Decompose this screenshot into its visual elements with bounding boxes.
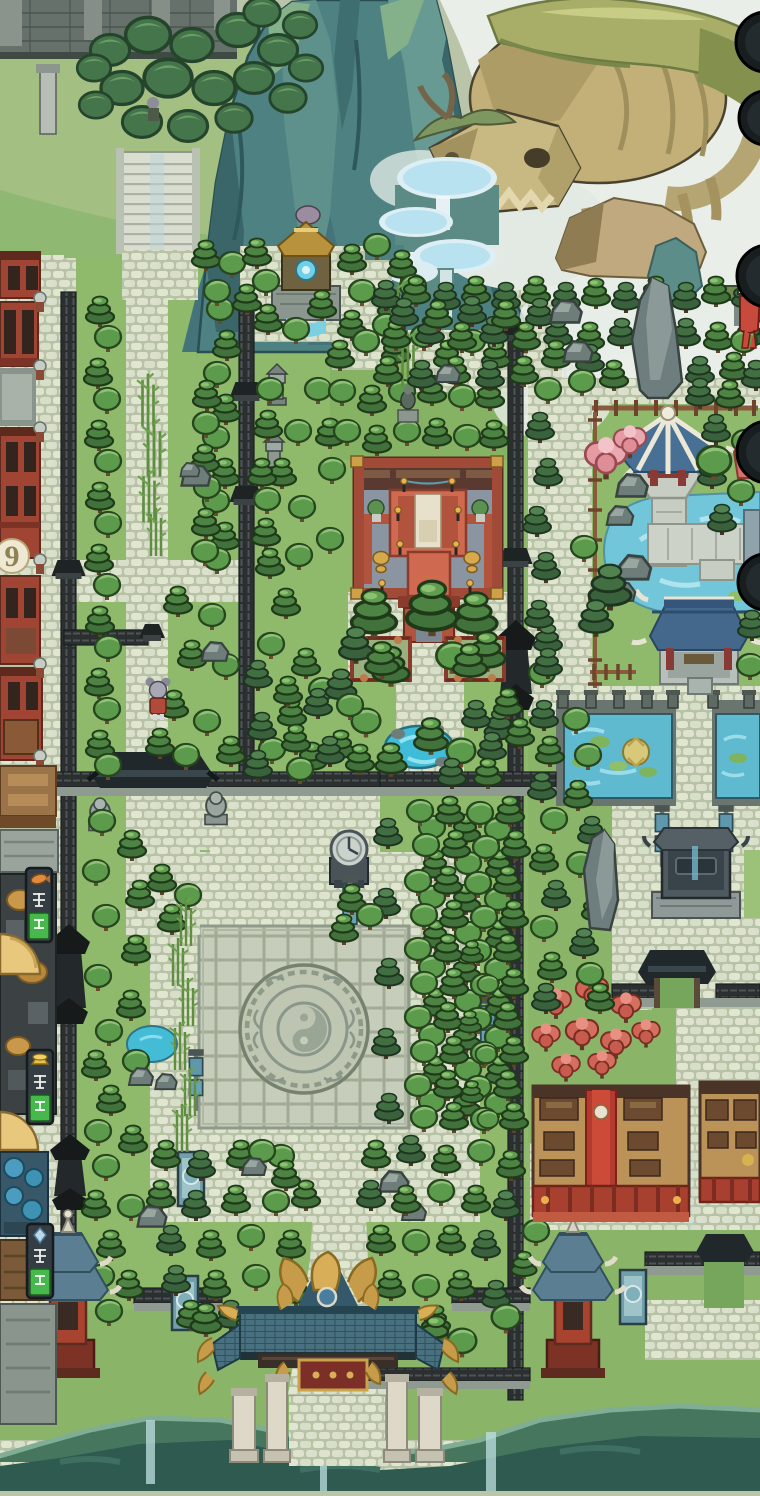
svg-text:9: 9	[5, 540, 20, 573]
